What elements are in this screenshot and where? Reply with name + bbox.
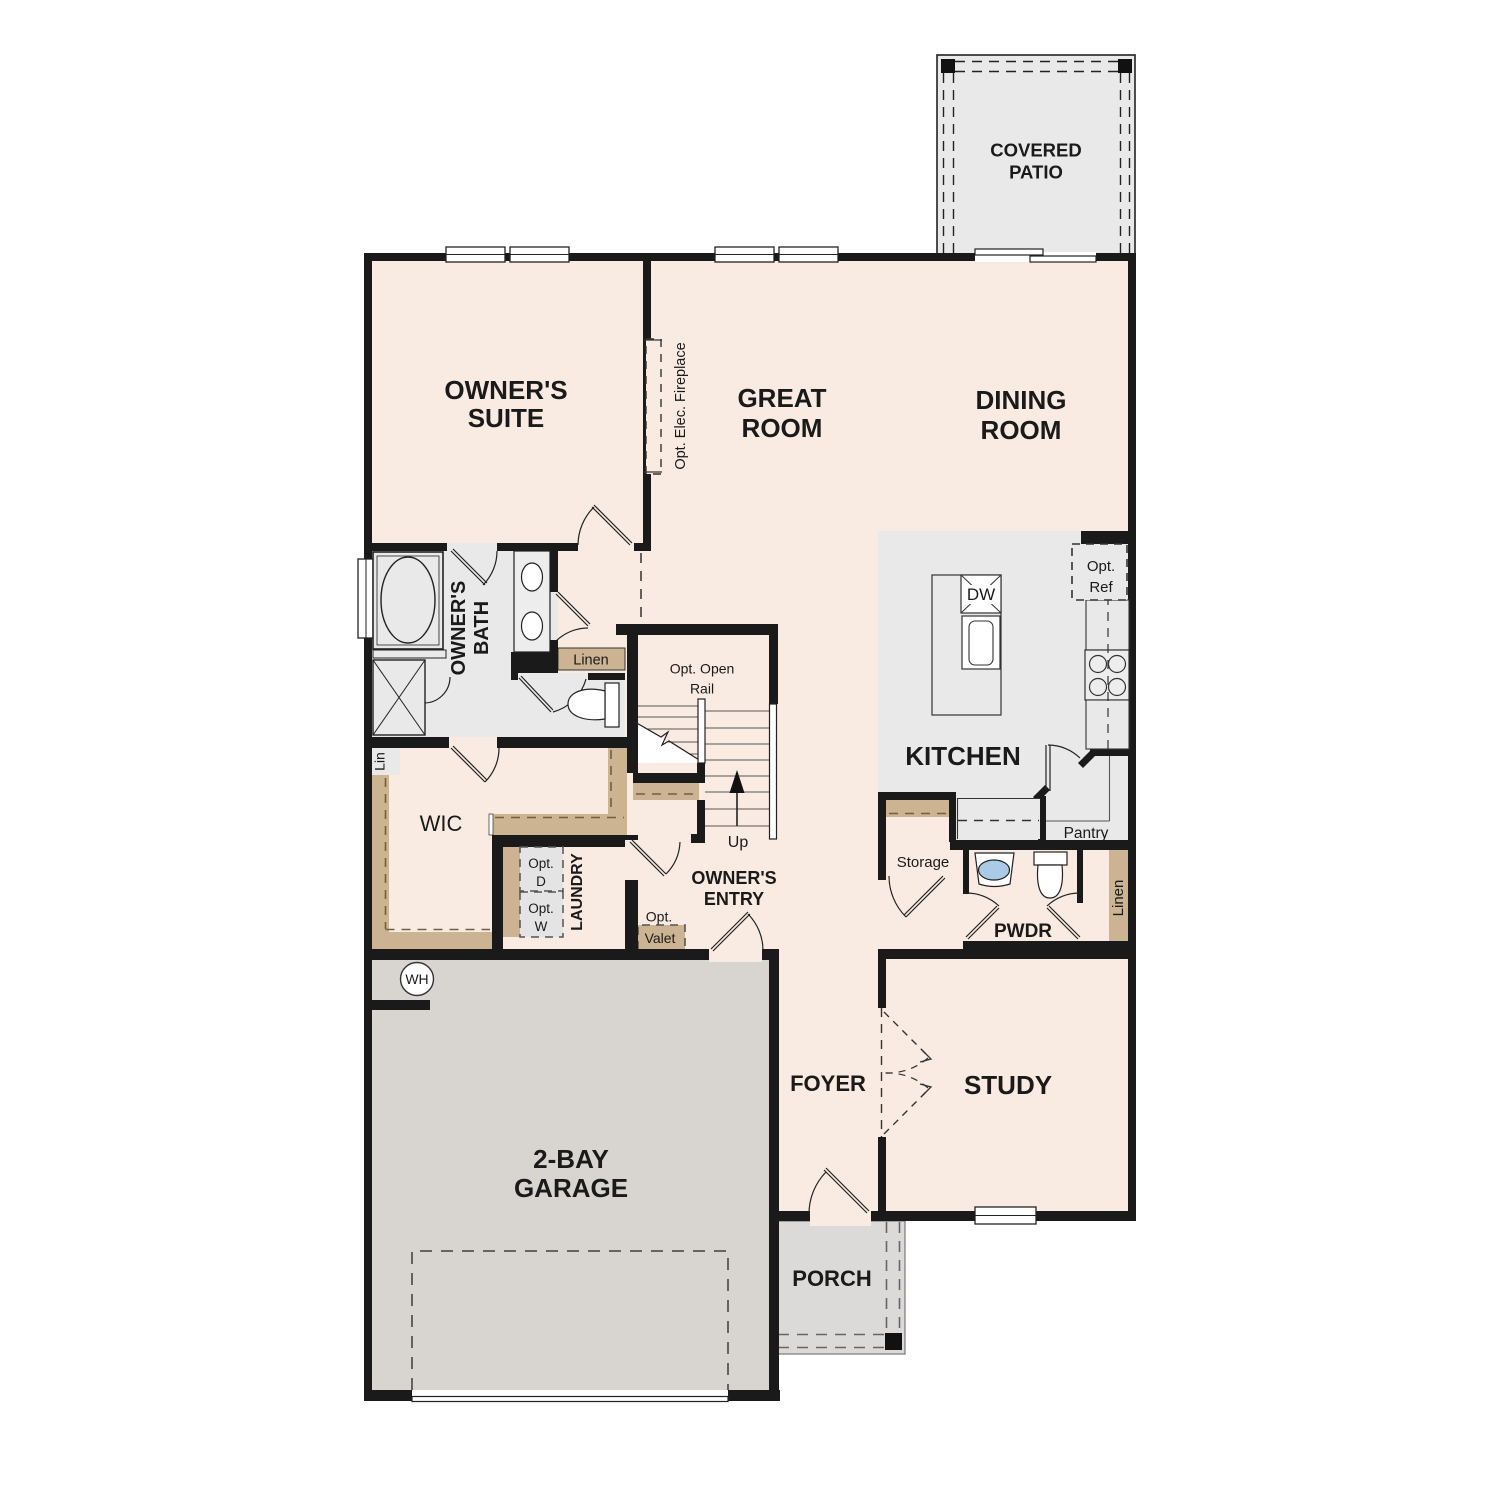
svg-text:PATIO: PATIO <box>1009 162 1063 183</box>
svg-text:LAUNDRY: LAUNDRY <box>569 853 586 931</box>
svg-text:D: D <box>536 874 546 889</box>
svg-text:W: W <box>535 919 548 934</box>
svg-text:Opt. Elec. Fireplace: Opt. Elec. Fireplace <box>673 342 689 469</box>
svg-text:Opt.: Opt. <box>1087 558 1115 575</box>
svg-text:FOYER: FOYER <box>790 1071 866 1096</box>
svg-text:WH: WH <box>405 971 428 987</box>
svg-text:Up: Up <box>728 834 749 851</box>
svg-text:SUITE: SUITE <box>468 403 545 433</box>
svg-text:OWNER'S: OWNER'S <box>691 868 776 888</box>
svg-text:WIC: WIC <box>420 811 463 836</box>
svg-text:COVERED: COVERED <box>990 140 1082 161</box>
svg-text:Pantry: Pantry <box>1064 825 1109 842</box>
svg-text:Ref: Ref <box>1089 579 1113 596</box>
svg-text:ENTRY: ENTRY <box>704 889 764 909</box>
svg-text:2-BAY: 2-BAY <box>533 1144 609 1174</box>
svg-text:BATH: BATH <box>471 601 493 655</box>
svg-text:PWDR: PWDR <box>994 921 1052 942</box>
svg-text:GARAGE: GARAGE <box>514 1173 628 1203</box>
svg-text:Linen: Linen <box>1110 880 1127 917</box>
svg-text:DW: DW <box>967 585 995 604</box>
svg-text:STUDY: STUDY <box>964 1070 1052 1100</box>
svg-text:Opt. Open: Opt. Open <box>670 661 735 677</box>
svg-text:Rail: Rail <box>690 681 714 697</box>
svg-text:PORCH: PORCH <box>792 1266 871 1291</box>
svg-text:Linen: Linen <box>573 653 608 669</box>
svg-text:DINING: DINING <box>976 385 1067 415</box>
svg-text:ROOM: ROOM <box>742 413 823 443</box>
svg-text:ROOM: ROOM <box>981 415 1062 445</box>
svg-text:OWNER'S: OWNER'S <box>444 375 567 405</box>
svg-text:Lin: Lin <box>372 752 388 771</box>
svg-text:Opt.: Opt. <box>646 909 672 925</box>
svg-text:KITCHEN: KITCHEN <box>905 741 1021 771</box>
svg-text:Opt.: Opt. <box>528 901 554 916</box>
svg-text:Storage: Storage <box>897 854 950 871</box>
svg-text:Opt.: Opt. <box>528 856 554 871</box>
svg-text:Valet: Valet <box>645 930 676 946</box>
svg-text:GREAT: GREAT <box>737 383 826 413</box>
svg-text:OWNER'S: OWNER'S <box>448 581 470 676</box>
